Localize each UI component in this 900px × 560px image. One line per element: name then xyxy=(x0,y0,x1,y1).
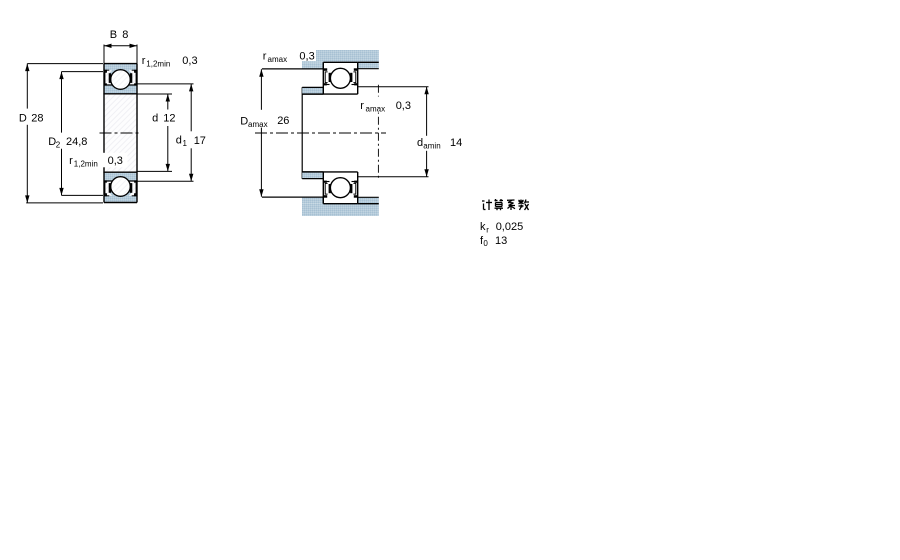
svg-text:0,3: 0,3 xyxy=(396,100,411,112)
svg-text:r: r xyxy=(263,51,267,63)
svg-text:D: D xyxy=(240,116,248,128)
svg-text:0,025: 0,025 xyxy=(496,221,524,233)
svg-text:0,3: 0,3 xyxy=(182,55,197,67)
svg-text:1,2min: 1,2min xyxy=(146,60,170,69)
svg-text:d: d xyxy=(417,137,423,149)
svg-text:D: D xyxy=(19,112,27,124)
svg-text:r: r xyxy=(486,226,489,235)
svg-text:d: d xyxy=(152,113,158,125)
svg-text:13: 13 xyxy=(495,235,507,247)
svg-text:k: k xyxy=(480,221,486,233)
svg-text:amin: amin xyxy=(423,141,440,150)
svg-text:d: d xyxy=(176,135,182,147)
svg-text:amax: amax xyxy=(366,105,386,114)
svg-text:0: 0 xyxy=(483,239,488,248)
svg-text:r: r xyxy=(360,100,364,112)
svg-text:1: 1 xyxy=(183,139,188,148)
svg-text:17: 17 xyxy=(194,135,206,147)
svg-text:r: r xyxy=(69,155,73,167)
svg-text:28: 28 xyxy=(31,112,43,124)
svg-text:1,2min: 1,2min xyxy=(74,160,98,169)
svg-text:0,3: 0,3 xyxy=(299,51,314,63)
svg-text:amax: amax xyxy=(248,120,268,129)
svg-text:14: 14 xyxy=(450,137,462,149)
svg-text:amax: amax xyxy=(268,55,288,64)
svg-text:r: r xyxy=(142,55,146,67)
svg-text:12: 12 xyxy=(163,113,175,125)
svg-text:8: 8 xyxy=(122,29,128,41)
svg-text:B: B xyxy=(110,29,117,41)
svg-text:0,3: 0,3 xyxy=(108,155,123,167)
svg-text:2: 2 xyxy=(56,141,61,150)
svg-text:26: 26 xyxy=(277,115,289,127)
svg-text:24,8: 24,8 xyxy=(66,136,87,148)
